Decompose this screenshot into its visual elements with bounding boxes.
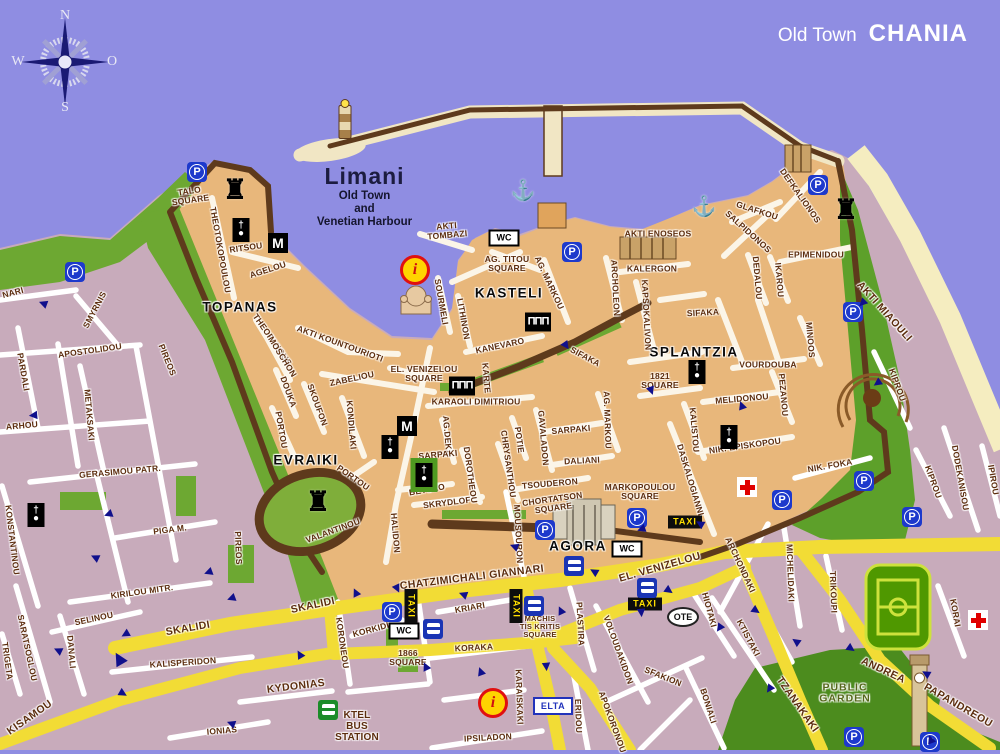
one-way-arrow: ▶ [559,339,573,352]
street-label: DEDALOU [751,256,764,300]
street-label: ANDREA [859,656,907,686]
street-label: AKTI KOUNTOURIOTI [296,324,385,364]
wc-icon: WC [389,623,420,640]
one-way-arrow: ▶ [390,583,404,595]
street-label: VALANTINOU [305,517,362,545]
street-label: MARKOPOULOU SQUARE [605,483,676,501]
street-label: KORAI [948,598,962,628]
parking-icon: P [562,242,582,262]
street-label: SMYRNIS [82,290,109,330]
street-label: CHATZIMICHALI GIANNARI [399,564,544,593]
medical-icon [968,610,988,630]
one-way-arrow: ▶ [924,733,937,745]
street-label: KALISTOU [687,407,700,453]
one-way-arrow: ▶ [920,666,933,680]
street-label: HALIDON [389,513,402,554]
street-label: 1821 SQUARE [641,372,679,390]
parking-icon: P [920,732,940,752]
one-way-arrow: ▶ [225,716,237,729]
street-label: KAPSOKALIVON [640,279,653,350]
street-label: EPIMENIDOU [788,250,844,259]
lighthouse-icon [339,105,352,139]
map-annotations: TALO SQUARETHEOTOKOPOULOURITSOUAGELOUTOP… [0,0,1000,750]
elta-icon: ELTA [533,697,573,715]
street-label: SKOUFON [305,383,329,427]
ote-icon: OTE [667,607,699,627]
one-way-arrow: ▶ [635,608,647,617]
one-way-arrow: ▶ [28,409,37,421]
metro-icon: M [397,416,417,436]
street-label: PEZANOU [777,373,790,417]
street-label: MACHIS TIS KRITIS SQUARE [520,615,560,639]
street-label: AKTI MIAOULI [854,280,914,344]
district-label: KASTELI [475,287,543,302]
street-label: TSOUDERON [522,477,579,491]
street-label: IKAROU [773,262,785,297]
street-label: GAVALADON [536,410,550,466]
parking-icon: P [854,471,874,491]
one-way-arrow: ▶ [474,665,487,677]
castle-icon: ♜ [223,177,247,204]
bus-icon [564,556,584,576]
one-way-arrow: ▶ [102,507,114,520]
temple-icon: ΠΠΠ [449,377,475,396]
street-label: APOSTOLIDOU [57,342,122,360]
street-label: KORKIDI [352,621,390,640]
street-label: KARAISKAKI [513,669,524,725]
street-label: AKTI TOMBAZI [426,220,467,242]
street-label: HIOTAKI [700,592,718,629]
church-icon: † ● [28,503,45,527]
churchgreen-icon: † ● [416,463,433,487]
one-way-arrow: ▶ [662,584,675,598]
one-way-arrow: ▶ [540,662,552,671]
street-label: KORONEOU [334,617,350,669]
street-label: SFAKION [643,665,683,688]
street-label: KIPROU [923,464,943,499]
one-way-arrow: ▶ [762,682,776,695]
street-label: SARATSOGLOU [15,614,38,682]
chania-old-town-map: TALO SQUARETHEOTOKOPOULOURITSOUAGELOUTOP… [0,0,1000,750]
one-way-arrow: ▶ [37,296,49,309]
street-label: SELINOU [74,610,114,627]
district-label: AGORA [549,540,607,555]
street-label: KTEL BUS STATION [335,711,379,743]
street-label: AG.DEKA [441,415,454,456]
street-label: KORAKA [455,642,494,653]
street-label: NIK. FOKA [807,458,853,475]
street-label: KIPROU [887,367,907,402]
street-label: KARAOLI DIMITRIOU [432,397,521,406]
street-label: LITHINON [455,298,471,341]
one-way-arrow: ▶ [419,660,433,672]
street-label: SKALIDI [165,620,211,639]
one-way-arrow: ▶ [635,522,647,535]
street-label: SARPAKI [418,449,458,462]
street-label: THEOFANOUS [251,312,294,367]
street-label: IPSILADON [464,732,513,744]
one-way-arrow: ▶ [508,539,520,552]
street-label: DANALI [65,635,77,669]
street-label: NARI [1,286,24,300]
street-label: CHORTATSON SQUARE [522,491,585,518]
street-label: KANEVARO [475,336,525,355]
street-label: GLAFKOU [735,200,779,222]
street-label: DODEKANISOU [950,445,970,512]
street-label: SIFAKA [687,308,720,319]
one-way-arrow: ▶ [117,687,130,701]
street-label: MINOOS [804,322,816,358]
street-label: VOURDOUBA [739,360,797,369]
one-way-arrow: ▶ [225,591,237,604]
street-label: MOUSOURON [512,504,524,563]
street-label: AGELOU [249,260,288,280]
street-label: SALPIDONOS [723,209,772,255]
info-icon: i [400,255,430,285]
church-icon: † ● [233,218,250,242]
one-way-arrow: ▶ [202,565,214,578]
street-label: PIREOS [233,531,243,565]
taxi-icon: TAXI [668,516,702,529]
street-label: SIFAKA [569,345,602,368]
street-label: TZANAKAKI [774,675,820,735]
street-label: PUBLIC GARDEN [819,683,871,706]
street-label: AG. TITOU SQUARE [485,255,530,273]
bus-icon [637,578,657,598]
street-label: KONSTANTINOU [3,505,21,576]
church-icon: † ● [721,425,738,449]
street-label: MOSCHON [266,335,298,379]
street-label: GERASIMOU PATR. [79,464,162,480]
anchor-icon: ⚓ [511,181,536,201]
one-way-arrow: ▶ [870,376,883,390]
one-way-arrow: ▶ [749,604,762,618]
parking-icon: P [843,302,863,322]
street-label: PAPANDREOU [922,682,994,730]
street-label: PIREOS [157,343,178,377]
street-label: SOURMELI [432,278,449,325]
church-icon: † ● [382,435,399,459]
district-label: EVRAIKI [273,454,338,469]
street-label: ZABELIOU [329,370,375,388]
street-label: TALO SQUARE [170,184,210,207]
street-label: ARCHOLEON [609,260,621,317]
parking-icon: P [65,262,85,282]
street-label: KALERGON [627,264,677,273]
street-label: MELIDONOU [715,392,769,406]
street-label: PLASTIRA [574,602,585,647]
anchor-icon: ⚓ [692,197,717,217]
one-way-arrow: ▶ [107,649,128,669]
street-label: AKTI ENOSEOS [625,229,692,238]
street-label: BETOLO [408,482,446,497]
street-label: AG. MARKOU [601,391,612,449]
parking-icon: P [902,507,922,527]
one-way-arrow: ▶ [457,587,469,600]
one-way-arrow: ▶ [89,550,101,564]
street-label: DOUKA [278,375,298,408]
street-label: MICHELIDAKI [784,544,795,602]
parking-icon: P [844,727,864,747]
street-label: SARPAKI [551,424,591,437]
church-icon: † ● [689,360,706,384]
street-label: EL. VENIZELOU SQUARE [391,365,458,383]
street-label: DOROTHEOU [461,446,478,504]
street-label: METAKSAKI [82,389,96,441]
street-label: DALIANI [564,455,600,466]
street-label: IPIROU [986,464,1000,496]
castle-icon: ♜ [834,197,858,224]
one-way-arrow: ▶ [855,296,869,310]
busgreen-icon [318,700,338,720]
parking-icon: P [772,490,792,510]
taxi-icon: TAXI [510,589,523,623]
parking-icon: P [187,162,207,182]
street-label: POTIE [513,426,526,454]
one-way-arrow: ▶ [588,564,601,578]
taxi-icon: TAXI [628,598,662,611]
street-label: PORTOU [273,411,289,449]
wc-icon: WC [489,230,520,247]
one-way-arrow: ▶ [712,621,726,634]
street-label: KIRILOU MITR. [110,583,174,601]
one-way-arrow: ▶ [52,643,64,657]
medical-icon [737,477,757,497]
street-label: KTISTAKI [735,618,762,658]
street-label: SKRYDLOF [423,496,472,511]
bus-icon [423,619,443,639]
info-icon: i [478,688,508,718]
one-way-arrow: ▶ [735,399,748,411]
district-label: TOPANAS [202,301,277,316]
street-label: SKALIDI [290,596,336,616]
one-way-arrow: ▶ [844,642,857,656]
wc-icon: WC [612,541,643,558]
castle-icon: ♜ [306,489,330,516]
district-label: SPLANTZIA [649,346,738,361]
one-way-arrow: ▶ [349,586,363,598]
one-way-arrow: ▶ [119,627,132,641]
bus-icon [524,596,544,616]
parking-icon: P [627,508,647,528]
street-label: DASKALOGIANNI [675,443,706,517]
one-way-arrow: ▶ [644,385,657,397]
street-label: ARHOU [6,420,39,432]
street-label: RITSOU [229,241,263,255]
street-label: AG. MARKOU [533,255,566,311]
street-label: KISAMOU [5,698,54,737]
street-label: KYDONIAS [266,678,326,696]
temple-icon: ΠΠΠ [525,313,551,332]
parking-icon: P [808,175,828,195]
street-label: THEOTOKOPOULOU [208,206,232,293]
street-label: CHRYSANTHOU [499,430,518,499]
street-label: PIGA M. [153,523,188,536]
metro-icon: M [268,233,288,253]
street-label: IONIAS [206,725,237,737]
street-label: DEFKALIONOS [778,167,822,225]
taxi-icon: TAXI [405,589,418,623]
street-label: KALISPERIDON [149,656,216,670]
one-way-arrow: ▶ [554,604,568,616]
one-way-arrow: ▶ [293,648,307,661]
street-label: EL. VENIZELOU [618,551,702,585]
street-label: KARTE [480,363,492,394]
one-way-arrow: ▶ [789,634,802,648]
one-way-arrow: ▶ [694,516,707,530]
street-label: APOKORONOU [597,690,628,754]
street-label: PORTOU [335,464,371,493]
street-label: PARDALI [15,352,31,392]
street-label: BONIALI [698,687,718,724]
parking-icon: P [535,520,555,540]
street-label: VOLOUDAKIDON [601,614,634,685]
street-label: TRIGETA [0,642,14,681]
street-label: ERIDOU [573,699,583,734]
parking-icon: P [382,602,402,622]
street-label: ARCHONDAKI [723,536,757,594]
street-label: TRIKOUPI [828,571,839,614]
street-label: KRIARI [454,601,486,615]
street-label: NIK. EPISKOPOU [708,436,781,455]
street-label: KONDILAKI [344,400,357,450]
street-label: 1866 SQUARE [389,649,427,667]
